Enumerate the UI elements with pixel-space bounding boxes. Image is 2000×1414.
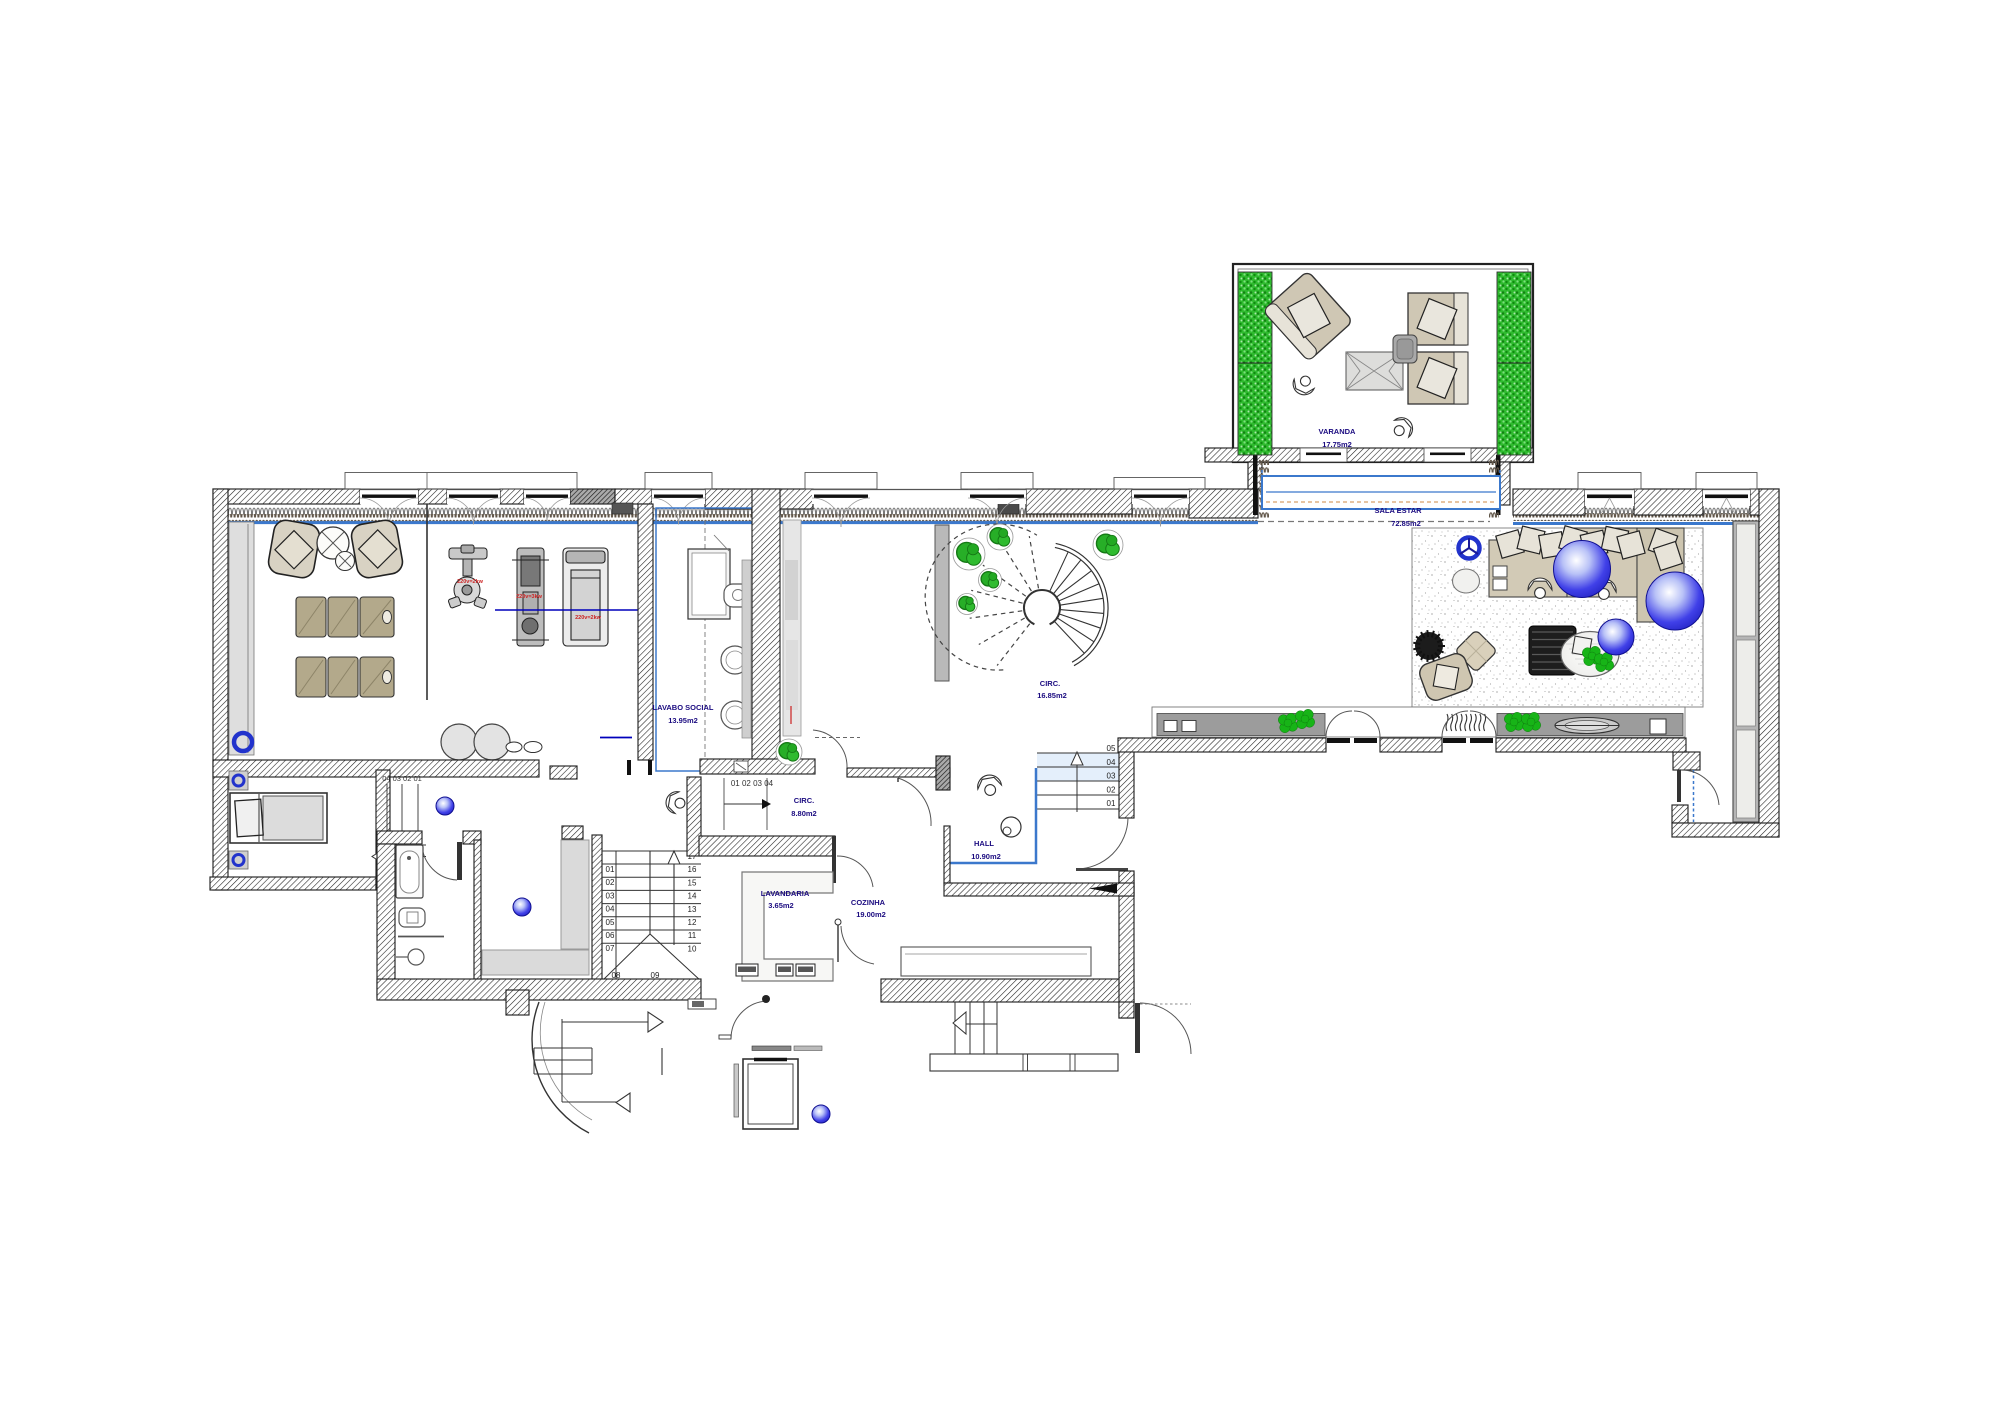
svg-text:8.80m2: 8.80m2 [791,809,816,818]
svg-text:220v=2kw: 220v=2kw [457,579,484,585]
svg-text:CIRC.: CIRC. [794,796,814,805]
svg-text:LAVANDARIA: LAVANDARIA [761,889,810,898]
svg-text:220v=2kw: 220v=2kw [575,615,602,621]
svg-text:220v=3kw: 220v=3kw [516,594,543,600]
svg-text:15: 15 [688,878,697,887]
svg-text:CIRC.: CIRC. [1040,679,1060,688]
svg-text:17.75m2: 17.75m2 [1322,440,1352,449]
svg-text:02: 02 [606,878,615,887]
svg-text:03: 03 [1107,772,1116,781]
svg-text:SALA ESTAR: SALA ESTAR [1374,506,1422,515]
svg-text:14: 14 [688,892,697,901]
svg-text:16: 16 [688,865,697,874]
svg-text:06: 06 [606,931,615,940]
svg-text:LAVABO SOCIAL: LAVABO SOCIAL [653,703,714,712]
svg-text:05: 05 [1107,744,1116,753]
svg-text:04 03 02 01: 04 03 02 01 [382,774,422,783]
svg-text:COZINHA: COZINHA [851,898,886,907]
svg-text:03: 03 [606,891,615,900]
svg-text:04: 04 [606,905,615,914]
svg-text:16.85m2: 16.85m2 [1037,691,1067,700]
svg-text:10: 10 [688,944,697,953]
svg-text:04: 04 [1107,758,1116,767]
svg-text:3.65m2: 3.65m2 [768,901,793,910]
svg-text:02: 02 [1107,785,1116,794]
svg-text:05: 05 [606,918,615,927]
svg-text:HALL: HALL [974,839,994,848]
svg-text:VARANDA: VARANDA [1319,427,1357,436]
svg-text:01: 01 [606,865,615,874]
svg-text:07: 07 [606,944,615,953]
svg-text:10.90m2: 10.90m2 [971,852,1001,861]
svg-text:13: 13 [688,905,697,914]
svg-text:19.00m2: 19.00m2 [856,910,886,919]
svg-text:01: 01 [1107,799,1116,808]
svg-text:11: 11 [688,931,697,940]
svg-text:72.85m2: 72.85m2 [1391,519,1421,528]
svg-text:13.95m2: 13.95m2 [668,716,698,725]
svg-text:12: 12 [688,918,697,927]
